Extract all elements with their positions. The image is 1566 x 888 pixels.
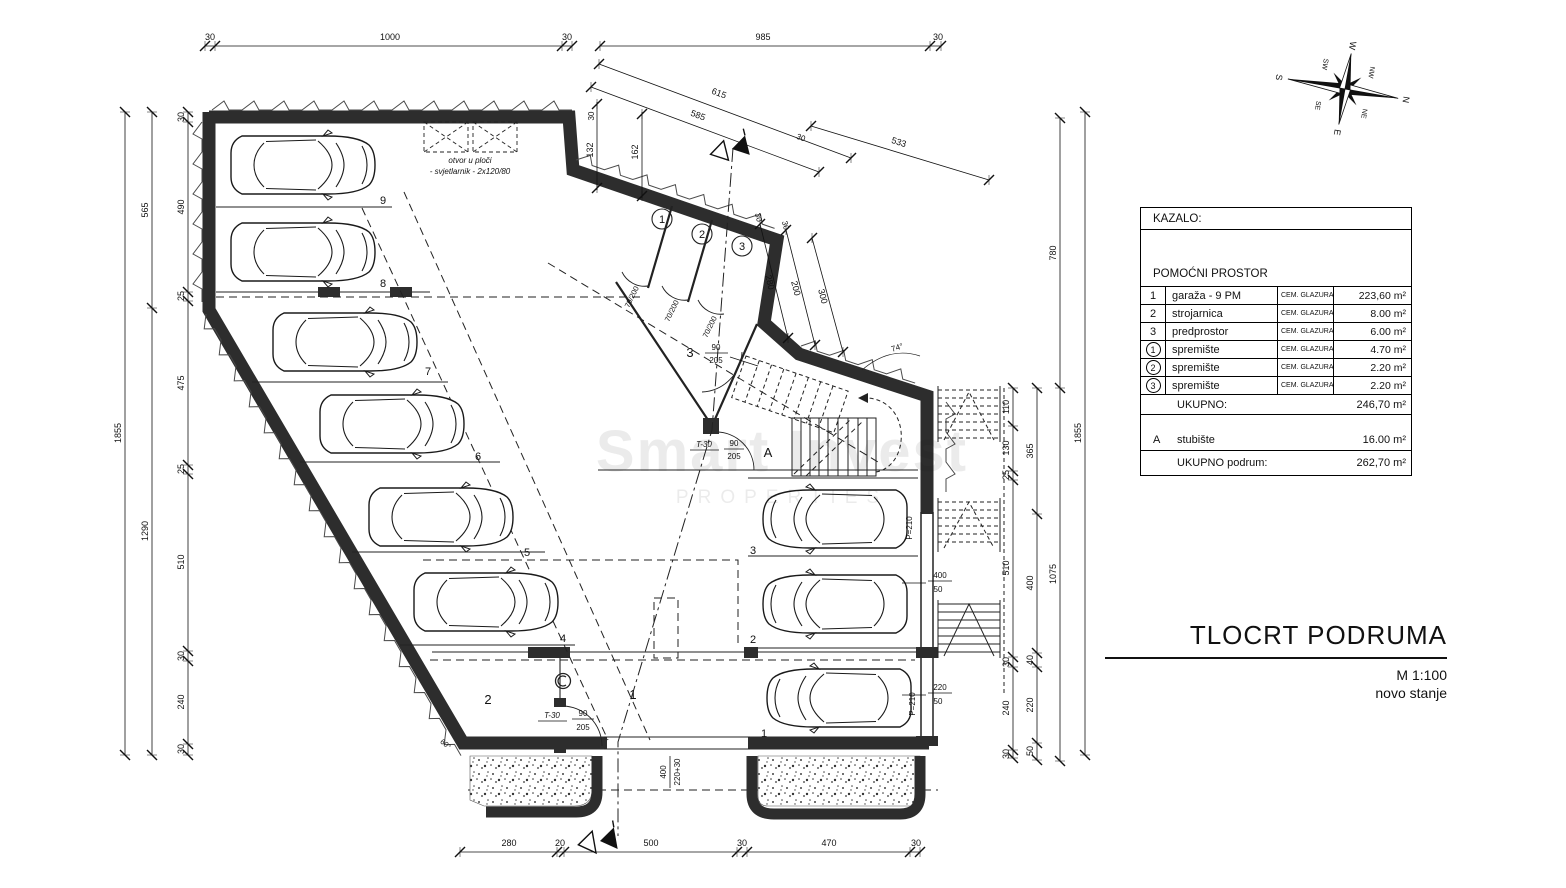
svg-text:30: 30 (1001, 749, 1011, 759)
row-name: predprostor (1165, 323, 1277, 340)
total-label: UKUPNO: (1177, 399, 1227, 411)
svg-text:30: 30 (176, 744, 186, 754)
svg-text:1290: 1290 (140, 521, 150, 541)
svg-text:205: 205 (727, 452, 741, 461)
parking-spot-numbers: 9 8 7 6 5 4 3 2 1 (380, 195, 767, 740)
svg-text:8: 8 (380, 278, 386, 290)
svg-text:25: 25 (176, 291, 186, 301)
row-no-circled: 2 (1146, 360, 1161, 375)
svg-text:30: 30 (176, 651, 186, 661)
svg-text:510: 510 (176, 554, 186, 569)
svg-text:NW: NW (1366, 66, 1375, 79)
svg-text:280: 280 (501, 838, 516, 848)
svg-text:132: 132 (585, 142, 595, 157)
row-finish: CEM. GLAZURA (1277, 341, 1333, 358)
svg-text:N: N (1401, 96, 1412, 104)
legend-row-storage3: 3 spremište CEM. GLAZURA 2.20 m² (1141, 376, 1411, 394)
legend-stair-row: A stubište 16.00 m² (1141, 431, 1411, 451)
legend-row-garage: 1 garaža - 9 PM CEM. GLAZURA 223,60 m² (1141, 286, 1411, 304)
svg-text:S: S (1274, 74, 1285, 82)
svg-text:20: 20 (555, 838, 565, 848)
svg-text:SE: SE (1313, 100, 1322, 111)
right-wall-thin (921, 512, 933, 742)
svg-text:490: 490 (176, 199, 186, 214)
door-t30-bottom: T-30 90 205 (538, 709, 594, 732)
title-rule (1105, 657, 1447, 659)
room-label-hall: 3 (686, 345, 693, 360)
svg-text:565: 565 (140, 202, 150, 217)
svg-text:T-30: T-30 (544, 711, 560, 720)
svg-text:70/200: 70/200 (701, 315, 719, 340)
svg-text:1855: 1855 (113, 423, 123, 443)
svg-text:50: 50 (934, 697, 943, 706)
legend-header-text: KAZALO: (1153, 213, 1202, 225)
entry-ramps (470, 756, 920, 814)
insulation-teeth (193, 101, 955, 760)
row-finish: CEM. GLAZURA (1277, 305, 1333, 322)
row-area: 2.20 m² (1333, 359, 1411, 376)
svg-text:90: 90 (579, 709, 588, 718)
title-block: TLOCRT PODRUMA M 1:100 novo stanje (1105, 620, 1447, 701)
row-finish: CEM. GLAZURA (1277, 377, 1333, 394)
svg-text:E: E (1332, 129, 1343, 137)
svg-text:475: 475 (176, 375, 186, 390)
svg-text:T-30: T-30 (696, 440, 712, 449)
svg-text:30: 30 (562, 32, 572, 42)
exterior-stairs (938, 386, 1004, 696)
section-marker-a-bottom (575, 820, 617, 855)
garage-door-opening (604, 737, 750, 749)
row-finish: CEM. GLAZURA (1277, 287, 1333, 304)
svg-text:74°: 74° (890, 341, 904, 353)
legend-total-row: UKUPNO: 246,70 m² (1141, 394, 1411, 415)
svg-text:25: 25 (1001, 470, 1011, 480)
row-name: spremište (1165, 341, 1277, 358)
svg-text:6: 6 (475, 451, 481, 463)
svg-text:30: 30 (933, 32, 943, 42)
room-label-boiler: 2 (484, 692, 491, 707)
svg-text:205: 205 (576, 723, 590, 732)
svg-text:30: 30 (176, 112, 186, 122)
dim-400-50: 400 50 (902, 571, 952, 594)
svg-text:4: 4 (560, 633, 566, 645)
angle-60: 60° (438, 737, 452, 751)
svg-text:30: 30 (795, 132, 807, 144)
svg-text:220: 220 (1025, 697, 1035, 712)
row-no-circled: 1 (1146, 342, 1161, 357)
legend-table: KAZALO: POMOĆNI PROSTOR 1 garaža - 9 PM … (1140, 207, 1412, 476)
svg-text:400: 400 (1025, 575, 1035, 590)
svg-text:90: 90 (712, 343, 721, 352)
svg-text:3: 3 (750, 545, 756, 557)
row-no: 1 (1141, 287, 1165, 304)
svg-text:1075: 1075 (1048, 564, 1058, 584)
row-finish: CEM. GLAZURA (1277, 323, 1333, 340)
row-finish: CEM. GLAZURA (1277, 359, 1333, 376)
legend-row-storage1: 1 spremište CEM. GLAZURA 4.70 m² (1141, 340, 1411, 358)
row-name: strojarnica (1165, 305, 1277, 322)
drawing-status: novo stanje (1105, 685, 1447, 701)
skylight-note-2: - svjetlarnik - 2x120/80 (430, 167, 511, 176)
svg-text:25: 25 (176, 464, 186, 474)
svg-text:780: 780 (1048, 245, 1058, 260)
svg-text:130: 130 (1001, 440, 1011, 455)
row-area: 4.70 m² (1333, 341, 1411, 358)
drawing-scale: M 1:100 (1105, 667, 1447, 683)
svg-text:200: 200 (789, 280, 802, 297)
svg-text:240: 240 (176, 694, 186, 709)
svg-text:1000: 1000 (380, 32, 400, 42)
drain-symbol (556, 674, 571, 689)
legend-row-boiler: 2 strojarnica CEM. GLAZURA 8.00 m² (1141, 304, 1411, 322)
door-labels: 70/200 70/200 70/200 90 205 T-30 90 205 … (538, 285, 758, 732)
svg-text:SW: SW (1320, 58, 1329, 71)
row-area: 223,60 m² (1333, 287, 1411, 304)
svg-text:5: 5 (524, 547, 530, 559)
svg-text:2: 2 (699, 229, 705, 241)
svg-text:NE: NE (1359, 108, 1368, 119)
svg-text:500: 500 (643, 838, 658, 848)
svg-text:365: 365 (1025, 443, 1035, 458)
svg-text:510: 510 (1001, 560, 1011, 575)
row-name: garaža - 9 PM (1165, 287, 1277, 304)
svg-text:110: 110 (1001, 400, 1011, 414)
legend-section-text: POMOĆNI PROSTOR (1153, 268, 1268, 280)
row-area: 2.20 m² (1333, 377, 1411, 394)
section-marker-a-top (706, 129, 749, 164)
svg-text:30: 30 (587, 111, 596, 120)
svg-text:W: W (1347, 41, 1358, 52)
section-line-a (618, 148, 733, 836)
legend-header: KAZALO: (1141, 208, 1411, 230)
row-no: 3 (1141, 323, 1165, 340)
p210-label-1: P=210 (905, 516, 914, 540)
svg-text:30: 30 (737, 838, 747, 848)
dim-garage-door: 400 220+30 (659, 756, 682, 788)
room-label-garage: 1 (629, 687, 636, 702)
svg-text:2: 2 (750, 634, 756, 646)
total-area: 246,70 m² (1356, 399, 1406, 411)
svg-text:30: 30 (911, 838, 921, 848)
svg-text:400: 400 (659, 765, 668, 779)
grand-label: UKUPNO podrum: (1177, 457, 1267, 469)
stair-area: 16.00 m² (1363, 434, 1406, 446)
legend-row-hall: 3 predprostor CEM. GLAZURA 6.00 m² (1141, 322, 1411, 340)
skylight-note-1: otvor u ploči (448, 156, 491, 165)
svg-text:615: 615 (710, 86, 728, 101)
svg-text:9: 9 (380, 195, 386, 207)
svg-text:3: 3 (739, 241, 745, 253)
svg-text:220+30: 220+30 (673, 758, 682, 785)
svg-text:205: 205 (709, 356, 723, 365)
svg-text:240: 240 (1001, 700, 1011, 715)
page-title: TLOCRT PODRUMA (1105, 620, 1447, 651)
floor-plan-page: { "title_block": { "title": "TLOCRT PODR… (0, 0, 1566, 888)
svg-text:1855: 1855 (1073, 423, 1083, 443)
svg-text:1: 1 (761, 728, 767, 740)
compass-rose-icon: N S E W NE SE SW NW (1266, 29, 1419, 147)
svg-text:985: 985 (755, 32, 770, 42)
svg-text:50: 50 (934, 585, 943, 594)
door-90-205: 90 205 (705, 343, 758, 366)
angle-74: 74° (862, 341, 920, 370)
row-name: spremište (1165, 377, 1277, 394)
row-name: spremište (1165, 359, 1277, 376)
svg-text:585: 585 (689, 108, 707, 123)
svg-text:300: 300 (816, 288, 829, 305)
svg-text:90: 90 (730, 439, 739, 448)
svg-text:220: 220 (933, 683, 947, 692)
svg-text:40: 40 (1025, 655, 1035, 665)
svg-text:1: 1 (659, 214, 665, 226)
legend-grand-row: UKUPNO podrum: 262,70 m² (1141, 451, 1411, 475)
svg-text:470: 470 (821, 838, 836, 848)
svg-text:30: 30 (205, 32, 215, 42)
stair-name: stubište (1177, 434, 1363, 446)
row-area: 8.00 m² (1333, 305, 1411, 322)
row-no: 2 (1141, 305, 1165, 322)
legend-row-storage2: 2 spremište CEM. GLAZURA 2.20 m² (1141, 358, 1411, 376)
svg-text:50: 50 (1025, 746, 1035, 756)
door-t30-top: T-30 90 205 (690, 439, 744, 461)
room-label-stair: A (764, 445, 773, 460)
wing-partitions (616, 206, 757, 426)
stair-no: A (1153, 434, 1177, 446)
svg-text:7: 7 (425, 366, 431, 378)
svg-text:162: 162 (630, 144, 640, 159)
row-area: 6.00 m² (1333, 323, 1411, 340)
legend-section-title: POMOĆNI PROSTOR (1141, 230, 1411, 286)
svg-text:400: 400 (933, 571, 947, 580)
grand-area: 262,70 m² (1356, 457, 1406, 469)
svg-text:533: 533 (890, 135, 907, 149)
skylight-opening (424, 122, 517, 152)
svg-text:70/200: 70/200 (663, 299, 681, 324)
svg-text:30: 30 (1001, 657, 1011, 667)
parked-cars (231, 130, 911, 733)
row-no-circled: 3 (1146, 378, 1161, 393)
svg-text:30: 30 (780, 220, 791, 231)
